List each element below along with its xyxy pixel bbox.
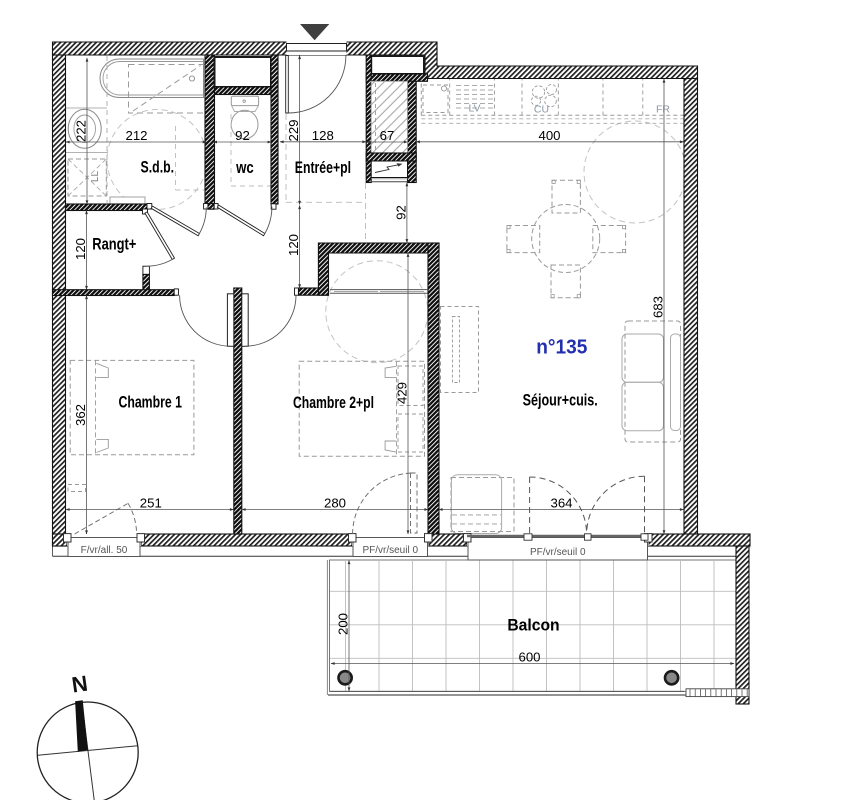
svg-text:212: 212	[125, 128, 147, 143]
svg-text:251: 251	[140, 496, 162, 511]
svg-text:280: 280	[324, 496, 346, 511]
svg-text:S.d.b.: S.d.b.	[141, 158, 175, 177]
svg-text:CU: CU	[534, 104, 549, 116]
svg-text:LV: LV	[468, 103, 480, 115]
svg-text:683: 683	[650, 296, 665, 318]
svg-text:F/vr/all. 50: F/vr/all. 50	[81, 545, 128, 556]
svg-text:400: 400	[538, 128, 560, 143]
svg-text:128: 128	[312, 128, 334, 143]
svg-text:429: 429	[394, 382, 409, 404]
svg-text:Rangt+: Rangt+	[92, 234, 136, 253]
svg-text:Chambre 1: Chambre 1	[118, 393, 182, 412]
svg-text:120: 120	[73, 238, 88, 260]
svg-text:222: 222	[73, 120, 88, 142]
svg-text:FR: FR	[656, 104, 670, 116]
svg-text:67: 67	[380, 128, 395, 143]
svg-text:Séjour+cuis.: Séjour+cuis.	[523, 391, 598, 410]
svg-text:229: 229	[286, 119, 301, 141]
svg-text:PF/vr/seuil 0: PF/vr/seuil 0	[530, 547, 586, 558]
svg-text:wc: wc	[235, 158, 253, 177]
svg-text:600: 600	[518, 650, 540, 665]
svg-text:364: 364	[550, 496, 572, 511]
svg-text:Chambre 2+pl: Chambre 2+pl	[293, 393, 374, 412]
svg-text:PF/vr/seuil 0: PF/vr/seuil 0	[362, 545, 418, 556]
svg-text:LL: LL	[90, 171, 101, 183]
svg-text:N: N	[70, 671, 89, 698]
svg-text:92: 92	[393, 205, 408, 220]
svg-text:Entrée+pl: Entrée+pl	[295, 158, 351, 177]
svg-text:n°135: n°135	[536, 336, 587, 359]
svg-text:Balcon: Balcon	[507, 616, 559, 635]
svg-text:92: 92	[235, 128, 250, 143]
svg-text:120: 120	[286, 234, 301, 256]
svg-text:362: 362	[73, 404, 88, 426]
svg-text:200: 200	[335, 613, 350, 635]
